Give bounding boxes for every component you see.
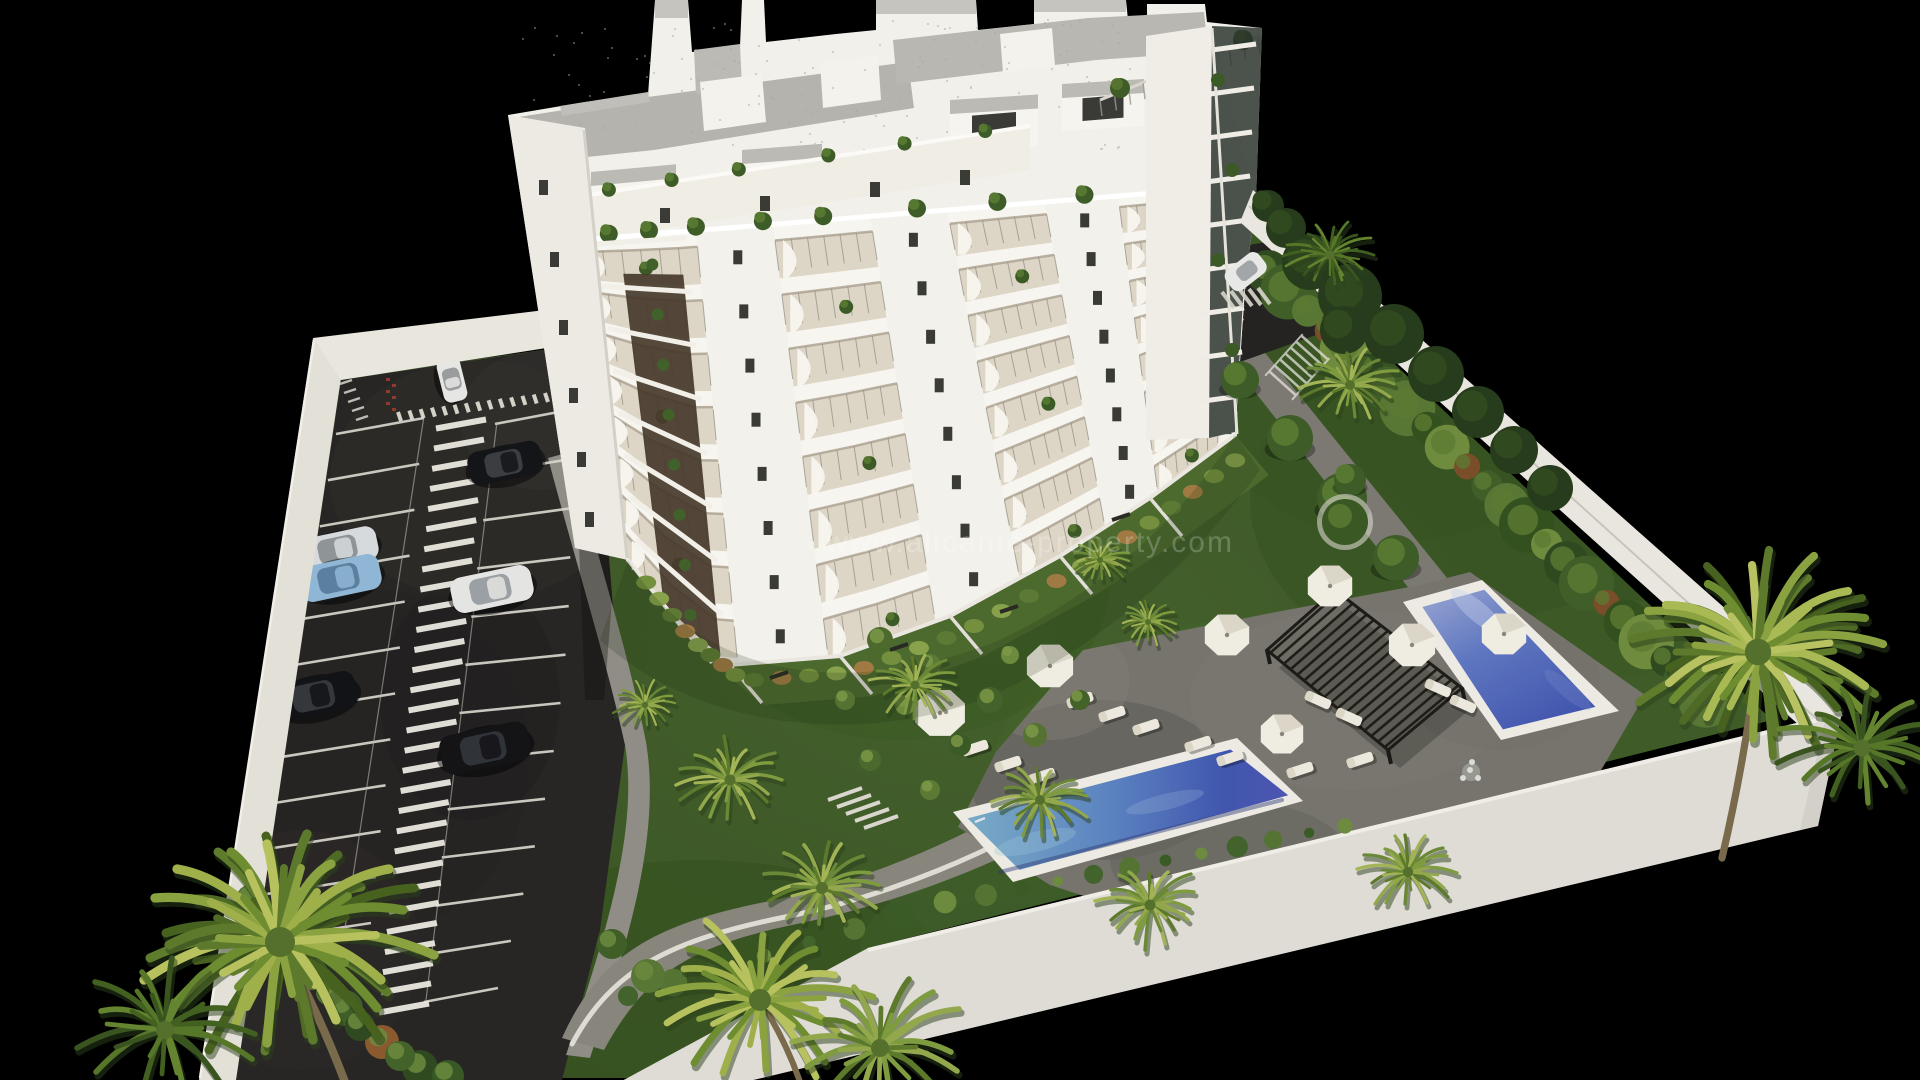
svg-text:www.alicante-property.com: www.alicante-property.com bbox=[825, 526, 1234, 559]
